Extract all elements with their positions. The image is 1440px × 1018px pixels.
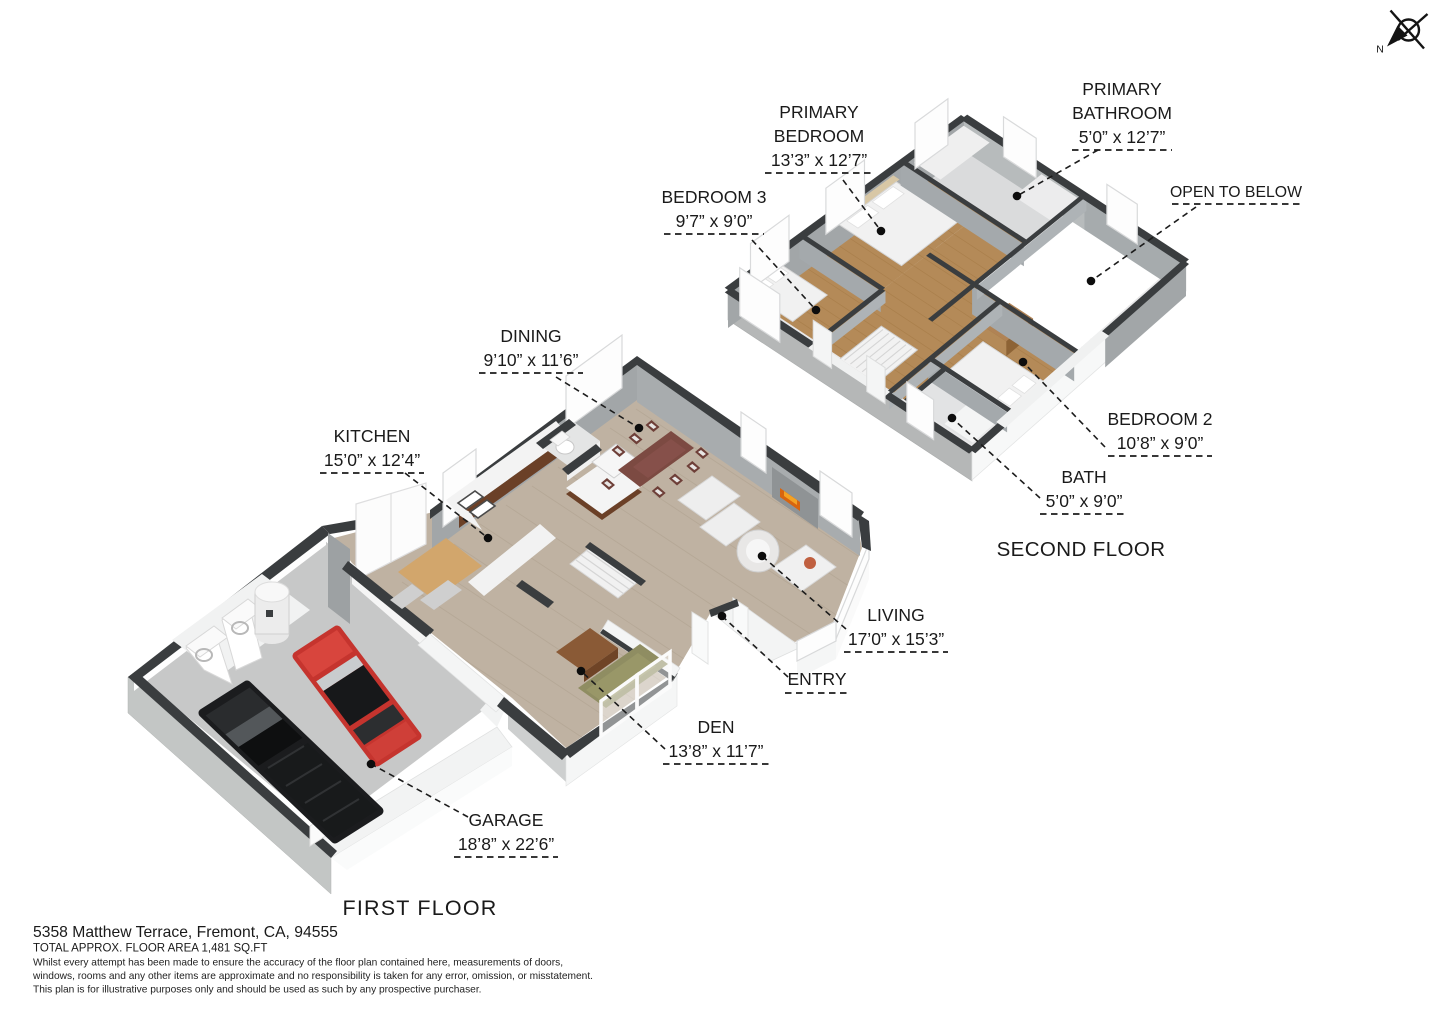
svg-text:N: N (1376, 44, 1384, 56)
svg-text:BEDROOM 2: BEDROOM 2 (1107, 409, 1212, 429)
svg-text:GARAGE: GARAGE (469, 810, 544, 830)
svg-text:SECOND FLOOR: SECOND FLOOR (997, 538, 1166, 561)
svg-text:windows, rooms and any other i: windows, rooms and any other items are a… (32, 971, 593, 982)
svg-text:ENTRY: ENTRY (788, 669, 847, 689)
svg-text:15’0” x 12’4”: 15’0” x 12’4” (324, 450, 420, 470)
svg-text:5’0” x 12’7”: 5’0” x 12’7” (1079, 127, 1166, 147)
svg-text:LIVING: LIVING (867, 605, 924, 625)
svg-text:KITCHEN: KITCHEN (334, 426, 411, 446)
svg-text:PRIMARY: PRIMARY (779, 102, 859, 122)
svg-text:TOTAL APPROX. FLOOR AREA 1,481: TOTAL APPROX. FLOOR AREA 1,481 SQ.FT (33, 943, 267, 955)
svg-text:BATH: BATH (1061, 467, 1106, 487)
svg-text:18’8” x 22’6”: 18’8” x 22’6” (458, 834, 554, 854)
svg-text:DINING: DINING (500, 326, 561, 346)
svg-text:5358 Matthew Terrace, Fremont,: 5358 Matthew Terrace, Fremont, CA, 94555 (33, 924, 338, 941)
svg-text:OPEN TO BELOW: OPEN TO BELOW (1170, 184, 1302, 201)
svg-text:BATHROOM: BATHROOM (1072, 103, 1172, 123)
svg-text:PRIMARY: PRIMARY (1082, 79, 1162, 99)
svg-text:BEDROOM 3: BEDROOM 3 (661, 187, 766, 207)
svg-text:9’7” x 9’0”: 9’7” x 9’0” (676, 211, 753, 231)
svg-text:BEDROOM: BEDROOM (774, 126, 864, 146)
svg-text:Whilst every attempt has been: Whilst every attempt has been made to en… (33, 958, 563, 969)
svg-text:13’3” x 12’7”: 13’3” x 12’7” (771, 150, 867, 170)
svg-text:9’10” x 11’6”: 9’10” x 11’6” (483, 350, 578, 370)
svg-text:FIRST FLOOR: FIRST FLOOR (343, 896, 498, 920)
svg-text:5’0” x 9’0”: 5’0” x 9’0” (1046, 491, 1123, 511)
svg-text:17’0” x 15’3”: 17’0” x 15’3” (848, 629, 944, 649)
svg-text:DEN: DEN (698, 717, 735, 737)
svg-text:13’8” x 11’7”: 13’8” x 11’7” (668, 741, 763, 761)
svg-text:10’8” x 9’0”: 10’8” x 9’0” (1117, 433, 1204, 453)
svg-text:This plan is for illustrative: This plan is for illustrative purposes o… (33, 985, 482, 996)
